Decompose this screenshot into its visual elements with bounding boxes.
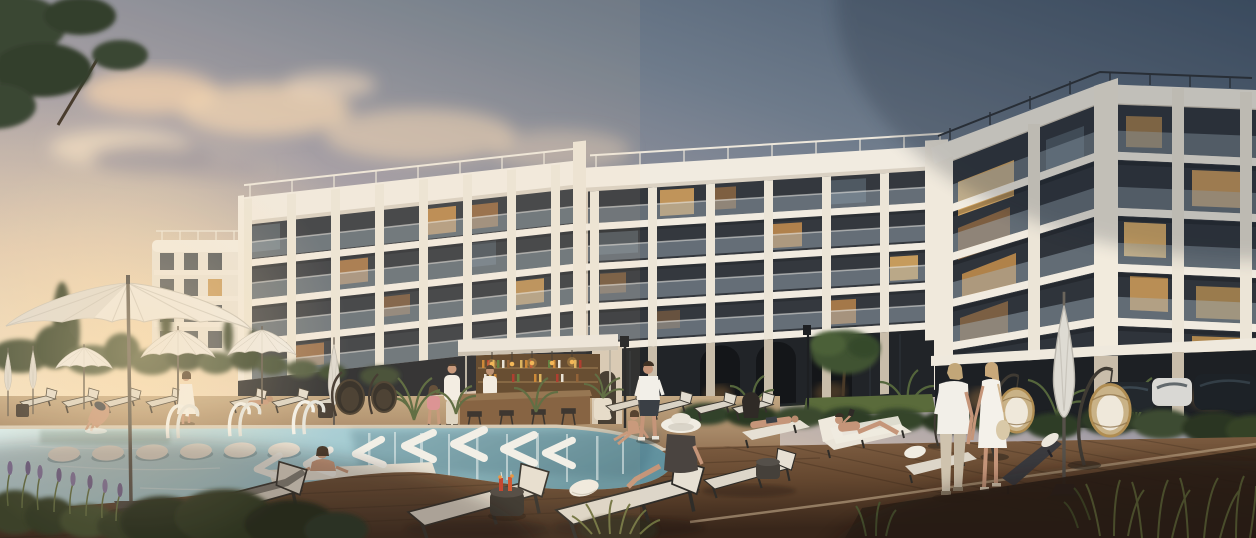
resort-render [0, 0, 1256, 538]
scene-canvas [0, 0, 1256, 538]
shoulder-bag [996, 420, 1010, 440]
white-car [1152, 378, 1192, 406]
urn-planter [742, 392, 760, 418]
side-table-2 [756, 458, 780, 479]
